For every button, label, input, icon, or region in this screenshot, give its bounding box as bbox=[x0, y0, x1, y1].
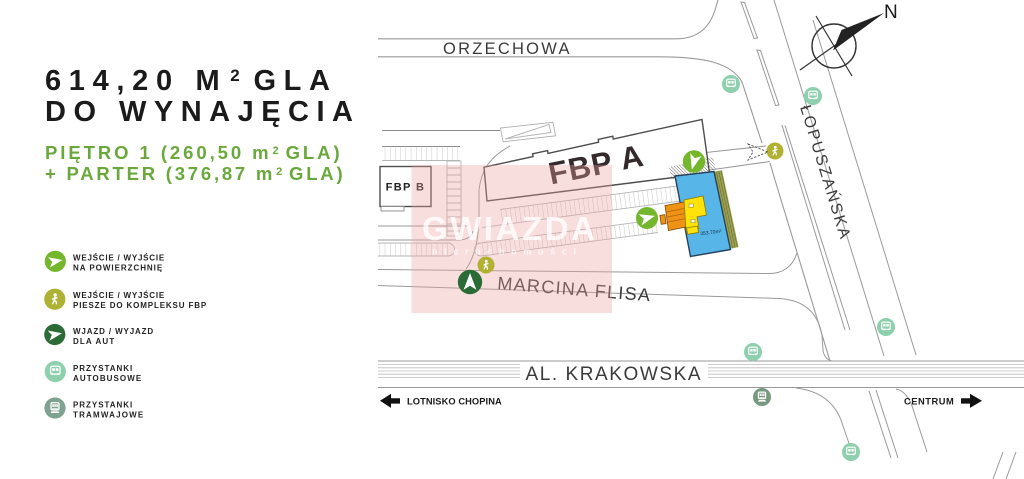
svg-text:614,20 M2GLA: 614,20 M2GLA bbox=[45, 65, 338, 97]
svg-text:TRAMWAJOWE: TRAMWAJOWE bbox=[73, 411, 144, 420]
svg-text:PIESZE DO KOMPLEKSU FBP: PIESZE DO KOMPLEKSU FBP bbox=[73, 301, 207, 310]
svg-text:ORZECHOWA: ORZECHOWA bbox=[443, 40, 572, 58]
svg-text:WEJŚCIE / WYJŚCIE: WEJŚCIE / WYJŚCIE bbox=[73, 291, 165, 300]
svg-text:WEJŚCIE / WYJŚCIE: WEJŚCIE / WYJŚCIE bbox=[73, 254, 165, 263]
svg-text:AL. KRAKOWSKA: AL. KRAKOWSKA bbox=[526, 364, 703, 385]
svg-text:NA POWIERZCHNIĘ: NA POWIERZCHNIĘ bbox=[73, 264, 163, 273]
svg-text:DLA AUT: DLA AUT bbox=[73, 337, 115, 346]
svg-text:nieruchomości: nieruchomości bbox=[432, 247, 582, 257]
svg-text:PRZYSTANKI: PRZYSTANKI bbox=[73, 364, 133, 373]
svg-text:LOTNISKO CHOPINA: LOTNISKO CHOPINA bbox=[407, 397, 503, 407]
svg-text:CENTRUM: CENTRUM bbox=[904, 397, 955, 407]
svg-text:PRZYSTANKI: PRZYSTANKI bbox=[73, 401, 133, 410]
svg-text:N: N bbox=[884, 2, 898, 23]
svg-text:PIĘTRO 1 (260,50 m2GLA): PIĘTRO 1 (260,50 m2GLA) bbox=[45, 142, 343, 163]
svg-text:GWIAZDA: GWIAZDA bbox=[422, 210, 597, 247]
svg-text:WJAZD / WYJAZD: WJAZD / WYJAZD bbox=[73, 327, 154, 336]
svg-text:AUTOBUSOWE: AUTOBUSOWE bbox=[73, 374, 142, 383]
svg-text:+ PARTER (376,87 m2GLA): + PARTER (376,87 m2GLA) bbox=[45, 163, 346, 184]
svg-text:DO WYNAJĘCIA: DO WYNAJĘCIA bbox=[45, 96, 361, 128]
